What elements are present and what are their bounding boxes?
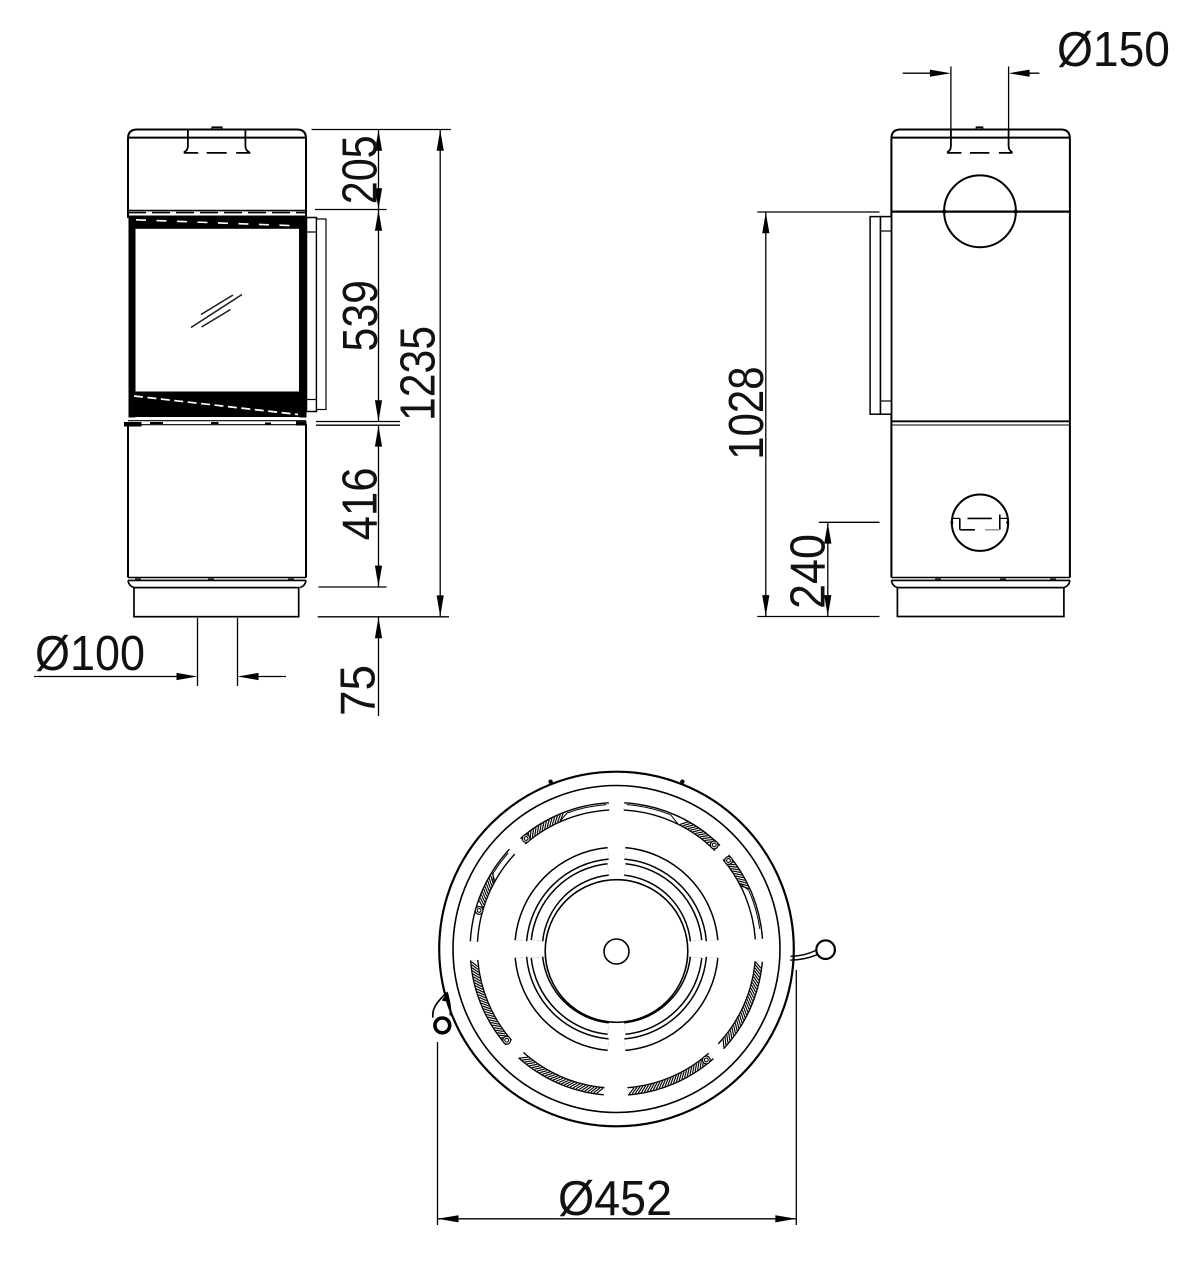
svg-text:1235: 1235: [391, 326, 445, 421]
svg-text:1028: 1028: [720, 367, 774, 460]
svg-text:Ø150: Ø150: [1057, 23, 1170, 77]
svg-text:75: 75: [332, 665, 386, 716]
svg-text:240: 240: [781, 534, 835, 609]
svg-text:Ø100: Ø100: [35, 627, 145, 681]
svg-text:416: 416: [334, 467, 388, 540]
svg-text:Ø452: Ø452: [558, 1172, 672, 1226]
svg-text:205: 205: [334, 135, 388, 204]
svg-text:539: 539: [334, 280, 388, 352]
